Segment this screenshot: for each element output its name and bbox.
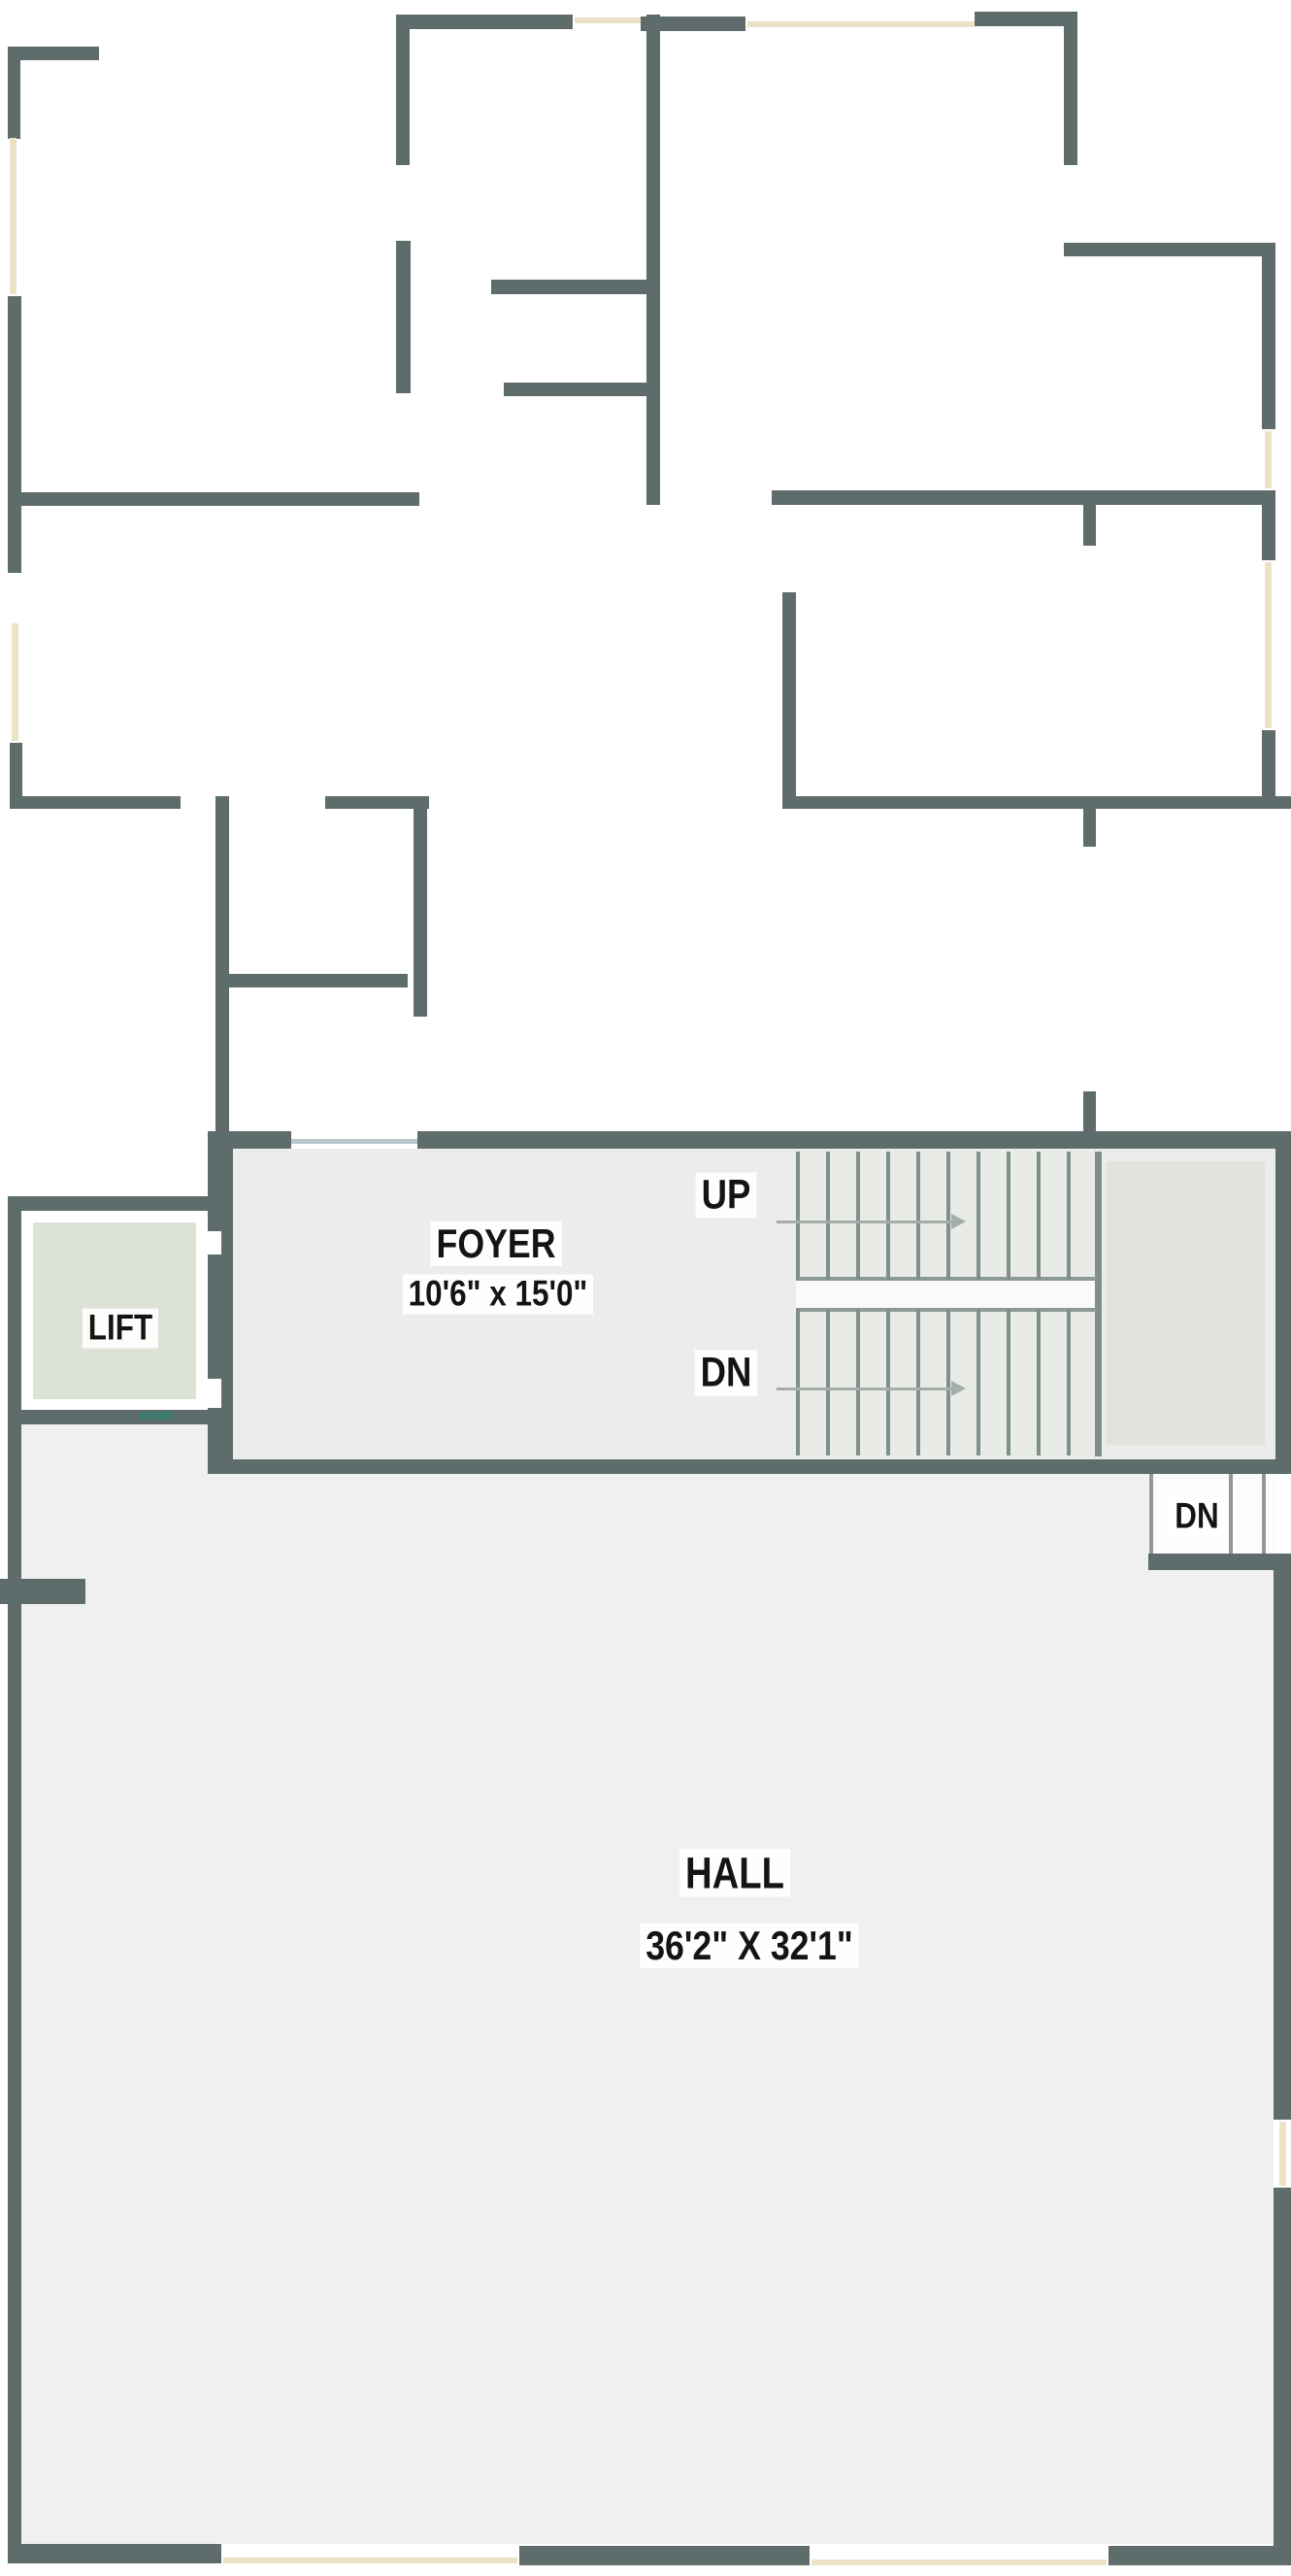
wall [782,796,1291,809]
stair-tread-line [1037,1152,1041,1280]
wall [1262,243,1275,429]
stair-tread-line [1097,1152,1101,1280]
wall [1083,505,1096,546]
wall [396,15,573,29]
wall [8,296,21,573]
stair-arrow-head [951,1381,966,1396]
wall-opening [208,1379,221,1408]
stair-direction-arrow [777,1388,951,1390]
wall [8,47,99,60]
wall [10,796,181,809]
wall-opening [208,1231,221,1255]
wall [782,592,796,809]
window-opening [1279,2122,1286,2186]
stair-tread-line [977,1152,980,1280]
foyer-room-label: FOYER [431,1221,562,1266]
stairs-up-label: UP [696,1172,757,1218]
hall-nook [21,1424,208,1474]
small-stair-down-label: DN [1169,1497,1224,1537]
wall [1064,243,1274,256]
stair-tread-line [886,1309,890,1455]
wall [1262,490,1275,560]
stair-tread-line [1097,1309,1101,1455]
window-opening [575,17,641,23]
wall [396,15,410,165]
wall [396,241,411,393]
wall [1274,2188,1291,2563]
lift-room-label: LIFT [83,1309,158,1349]
window-opening [10,138,17,294]
stair-edge-line [1262,1474,1266,1554]
window-opening [811,2559,1107,2565]
window-opening [223,2558,517,2563]
wall [1148,1554,1291,1570]
window-opening [1265,431,1272,488]
wall [646,15,660,505]
stair-tread-line [946,1309,950,1455]
stair-tread-line [946,1152,950,1280]
window-opening [747,21,975,27]
wall [975,12,1070,26]
stair-landing [1107,1161,1265,1445]
wall [1064,12,1077,165]
stair-tread-line [916,1309,920,1455]
stair-tread-line [1067,1309,1071,1455]
stair-tread-line [826,1152,830,1280]
wall [208,1459,1291,1474]
stair-direction-arrow [777,1221,951,1223]
wall [504,383,648,396]
wall [215,974,408,987]
stair-tread-line [856,1309,860,1455]
wall [519,2546,810,2565]
stair-tread-line [1007,1309,1010,1455]
stair-mid-landing [796,1280,1097,1309]
wall [8,1196,21,2563]
wall [8,1196,233,1211]
wall [1083,1091,1096,1133]
window-opening [1265,562,1272,728]
hall-dimensions-label: 36'2" X 32'1" [640,1924,859,1968]
lift-door [140,1412,173,1420]
wall [1274,1570,1291,2120]
window-opening [12,623,18,741]
door-opening [291,1139,417,1144]
wall [8,492,419,506]
wall [1109,2546,1291,2565]
stair-tread-line [796,1152,800,1280]
stair-edge-line [1229,1474,1233,1554]
wall [0,1579,85,1604]
floor-plan: LIFT FOYER 10'6" x 15'0" UP DN DN HALL 3… [0,0,1291,2576]
stair-tread-line [1067,1152,1071,1280]
wall [8,47,20,139]
hall-room [21,1474,1274,2544]
wall [215,796,229,1131]
stair-edge-line [1149,1474,1153,1554]
stair-tread-line [977,1309,980,1455]
stair-tread-line [1007,1152,1010,1280]
wall [772,490,1274,505]
stair-tread-line [796,1309,800,1455]
stair-tread-line [826,1309,830,1455]
wall [414,796,427,1017]
stair-tread-line [856,1152,860,1280]
wall [8,1410,233,1424]
stair-tread-line [886,1152,890,1280]
stair-tread-line [1037,1309,1041,1455]
wall [1275,1131,1291,1474]
stairs-down-label: DN [695,1350,758,1395]
wall [1083,809,1096,847]
foyer-dimensions-label: 10'6" x 15'0" [403,1275,594,1315]
hall-room-label: HALL [679,1849,790,1896]
stair-arrow-head [951,1214,966,1229]
stair-tread-line [916,1152,920,1280]
wall [491,280,648,294]
wall [21,2544,221,2563]
